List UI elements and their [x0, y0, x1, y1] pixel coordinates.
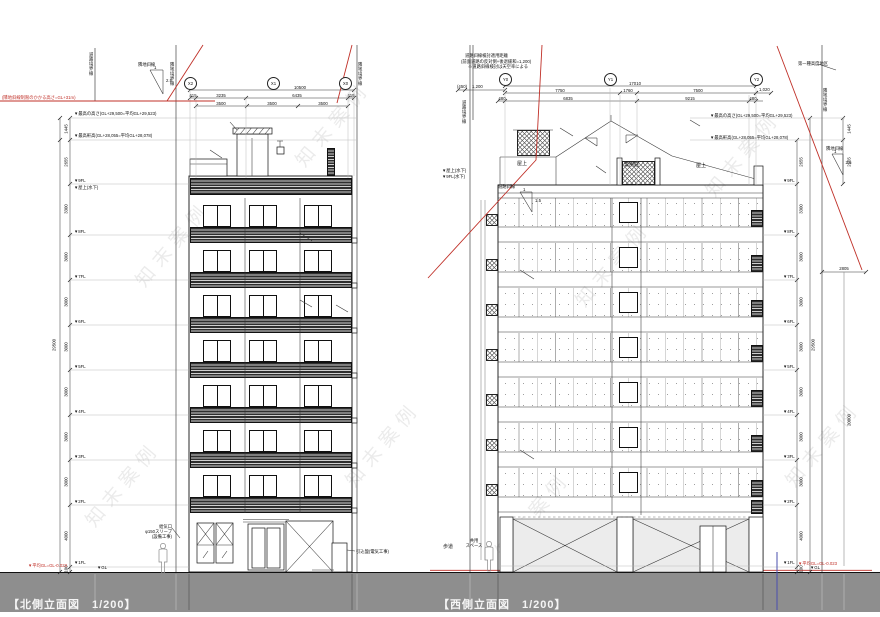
dim: 3500	[267, 101, 277, 106]
meter-annotation: 引込盤(電気工事)	[356, 549, 389, 554]
grid-label: X0	[343, 81, 348, 86]
left-level-label: ▼9FL(水下)	[442, 174, 465, 179]
dim: 3235	[216, 93, 226, 98]
floor-label: ▼1FL	[783, 560, 795, 565]
dim: 1,200	[472, 84, 483, 89]
floor-label: ▼3FL	[74, 454, 86, 459]
dim: (450)	[457, 84, 467, 89]
grid-label: X1	[271, 81, 276, 86]
dim-20m: 20000	[846, 414, 851, 426]
sidewalk-label: 歩道	[443, 544, 453, 550]
dim: 7500	[693, 88, 703, 93]
floor-label: ▼1FL	[74, 560, 86, 565]
floor-label: ▼7FL	[783, 274, 795, 279]
dim-v: 3000	[63, 297, 68, 307]
floor-label: ▼GL	[97, 565, 107, 570]
dim: 415	[189, 93, 196, 98]
dim-v: 3000	[798, 342, 803, 352]
floor-label: ▼8FL	[783, 229, 795, 234]
slope-run: 1	[523, 187, 525, 192]
grid-label: X2	[188, 81, 193, 86]
grid-bubble-y0: Y0	[499, 73, 512, 86]
dim-v: 1445	[63, 124, 68, 134]
dim-v: 4000	[798, 531, 803, 541]
dim: 480	[498, 96, 505, 101]
dim-total: 29500	[51, 339, 56, 351]
floor-label: ▼3FL	[783, 454, 795, 459]
slope-rise: 2.5	[846, 160, 852, 165]
floor-label: ▼5FL	[74, 364, 86, 369]
slope-name: 隣地斜線	[138, 62, 155, 67]
level-note-max: ▼最高の高さ(GL+29,500=平均GL+29,523)	[710, 113, 792, 118]
road-slope-note: ※道路斜線検討は天空率による	[468, 64, 528, 69]
boundary-label: 隣地境界線	[358, 62, 363, 86]
dim: 415	[347, 93, 354, 98]
floor-label: ▼5FL	[783, 364, 795, 369]
dim: 7750	[555, 88, 565, 93]
floor-label: ▼6FL	[74, 319, 86, 324]
dim-v: 3000	[63, 387, 68, 397]
dim-v: 2655	[63, 157, 68, 167]
height-district-note: 第一種高度地区	[798, 61, 828, 66]
level-note-max: ▼最高の高さ(GL+29,500=平均GL+29,523)	[74, 111, 156, 116]
floor-label: ▼2FL	[74, 499, 86, 504]
dim-v: 3000	[63, 432, 68, 442]
dim: 10500	[294, 85, 306, 90]
dim: 1,020	[759, 87, 770, 92]
slope-name: 道路斜線	[498, 184, 515, 189]
avg-gl-note: ▼平均GL=GL-0.023	[28, 563, 67, 568]
grid-label: Y0	[503, 77, 508, 82]
dim-v: 3000	[798, 477, 803, 487]
floor-label: ▼6FL	[783, 319, 795, 324]
floor-label: ▼4FL	[783, 409, 795, 414]
slope-run: 1	[154, 65, 156, 70]
grid-label: Y2	[754, 77, 759, 82]
dim-v: 3000	[798, 432, 803, 442]
grid-bubble-y1: Y1	[604, 73, 617, 86]
dim-total: 29500	[810, 339, 815, 351]
level-note-eave: ▼最高軒高(GL+28,055=平均GL+28,078)	[74, 133, 152, 138]
dim: 3500	[318, 101, 328, 106]
north-elevation-title: 【北側立面図 1/200】	[8, 596, 137, 612]
dim-v: 3000	[798, 252, 803, 262]
dim: 6835	[563, 96, 573, 101]
dim: 1760	[623, 88, 633, 93]
floor-label: ▼2FL	[783, 499, 795, 504]
floor-label: ▼8FL	[74, 229, 86, 234]
dim-v: 3000	[798, 387, 803, 397]
road-slope-note: 道路斜線検討適用距離	[465, 53, 508, 58]
roof-label: 屋上	[696, 163, 706, 169]
dim-v: 3300	[63, 204, 68, 214]
dim-v: 2655	[798, 157, 803, 167]
drawing-linework	[0, 0, 880, 617]
roof-label: 屋上	[517, 161, 527, 167]
west-elevation-title: 【西側立面図 1/200】	[438, 596, 567, 612]
dim: 17010	[629, 81, 641, 86]
grid-bubble-x2: X2	[184, 77, 197, 90]
dim: 3500	[216, 101, 226, 106]
dim: 6435	[292, 93, 302, 98]
slope-run: 1	[834, 149, 836, 154]
dim-v: 3300	[798, 204, 803, 214]
grid-bubble-x0: X0	[339, 77, 352, 90]
floor-label: ▼7FL	[74, 274, 86, 279]
dim: 480	[749, 96, 756, 101]
boundary-label: 隣地境界線	[823, 88, 828, 112]
dim-v: 3000	[63, 252, 68, 262]
dim-far-right: 1445	[846, 124, 851, 134]
dim-v: 3000	[63, 342, 68, 352]
level-note-eave: ▼最高軒高(GL+28,055=平均GL+28,078)	[710, 135, 788, 140]
dim-v: 3000	[63, 477, 68, 487]
boundary-label: 道路境界線	[89, 52, 94, 76]
elevation-sheet: 知末案例 知末案例 知末案例 知末案例 知末案例 知末案例 知末案例 知末案例 …	[0, 0, 880, 617]
vent-annotation: (設備工事)	[152, 534, 172, 539]
grid-label: Y1	[608, 77, 613, 82]
common-space-label: スペース	[466, 543, 483, 548]
setback-height-note: (隣地斜線制限のかかる高さ=GL+31m)	[2, 95, 76, 100]
floor-label: ▼9FL	[783, 178, 795, 183]
floor-label: ▼4FL	[74, 409, 86, 414]
left-level-label: ▼屋上(水下)	[442, 168, 466, 173]
dim: 9215	[685, 96, 695, 101]
floor-label: ▼9FL	[74, 178, 86, 183]
roof-label: 専用庭	[624, 162, 639, 168]
avg-gl-note: ▼平均GL=GL-0.023	[798, 561, 837, 566]
dim-setback: 2805	[839, 266, 849, 271]
grid-bubble-y2: Y2	[750, 73, 763, 86]
dim-v: 100	[798, 565, 803, 572]
rooftop-label: ▼屋上(水下)	[74, 185, 98, 190]
boundary-label: 隣地境界線	[170, 62, 175, 86]
dim-v: 3000	[798, 297, 803, 307]
dim-v: 4000	[63, 531, 68, 541]
road-slope-note: (前面道路の反対側+後退緩和=1,200)	[461, 59, 531, 64]
boundary-label: 道路境界線	[462, 100, 467, 124]
slope-rise: 1.5	[535, 198, 541, 203]
grid-bubble-x1: X1	[267, 77, 280, 90]
